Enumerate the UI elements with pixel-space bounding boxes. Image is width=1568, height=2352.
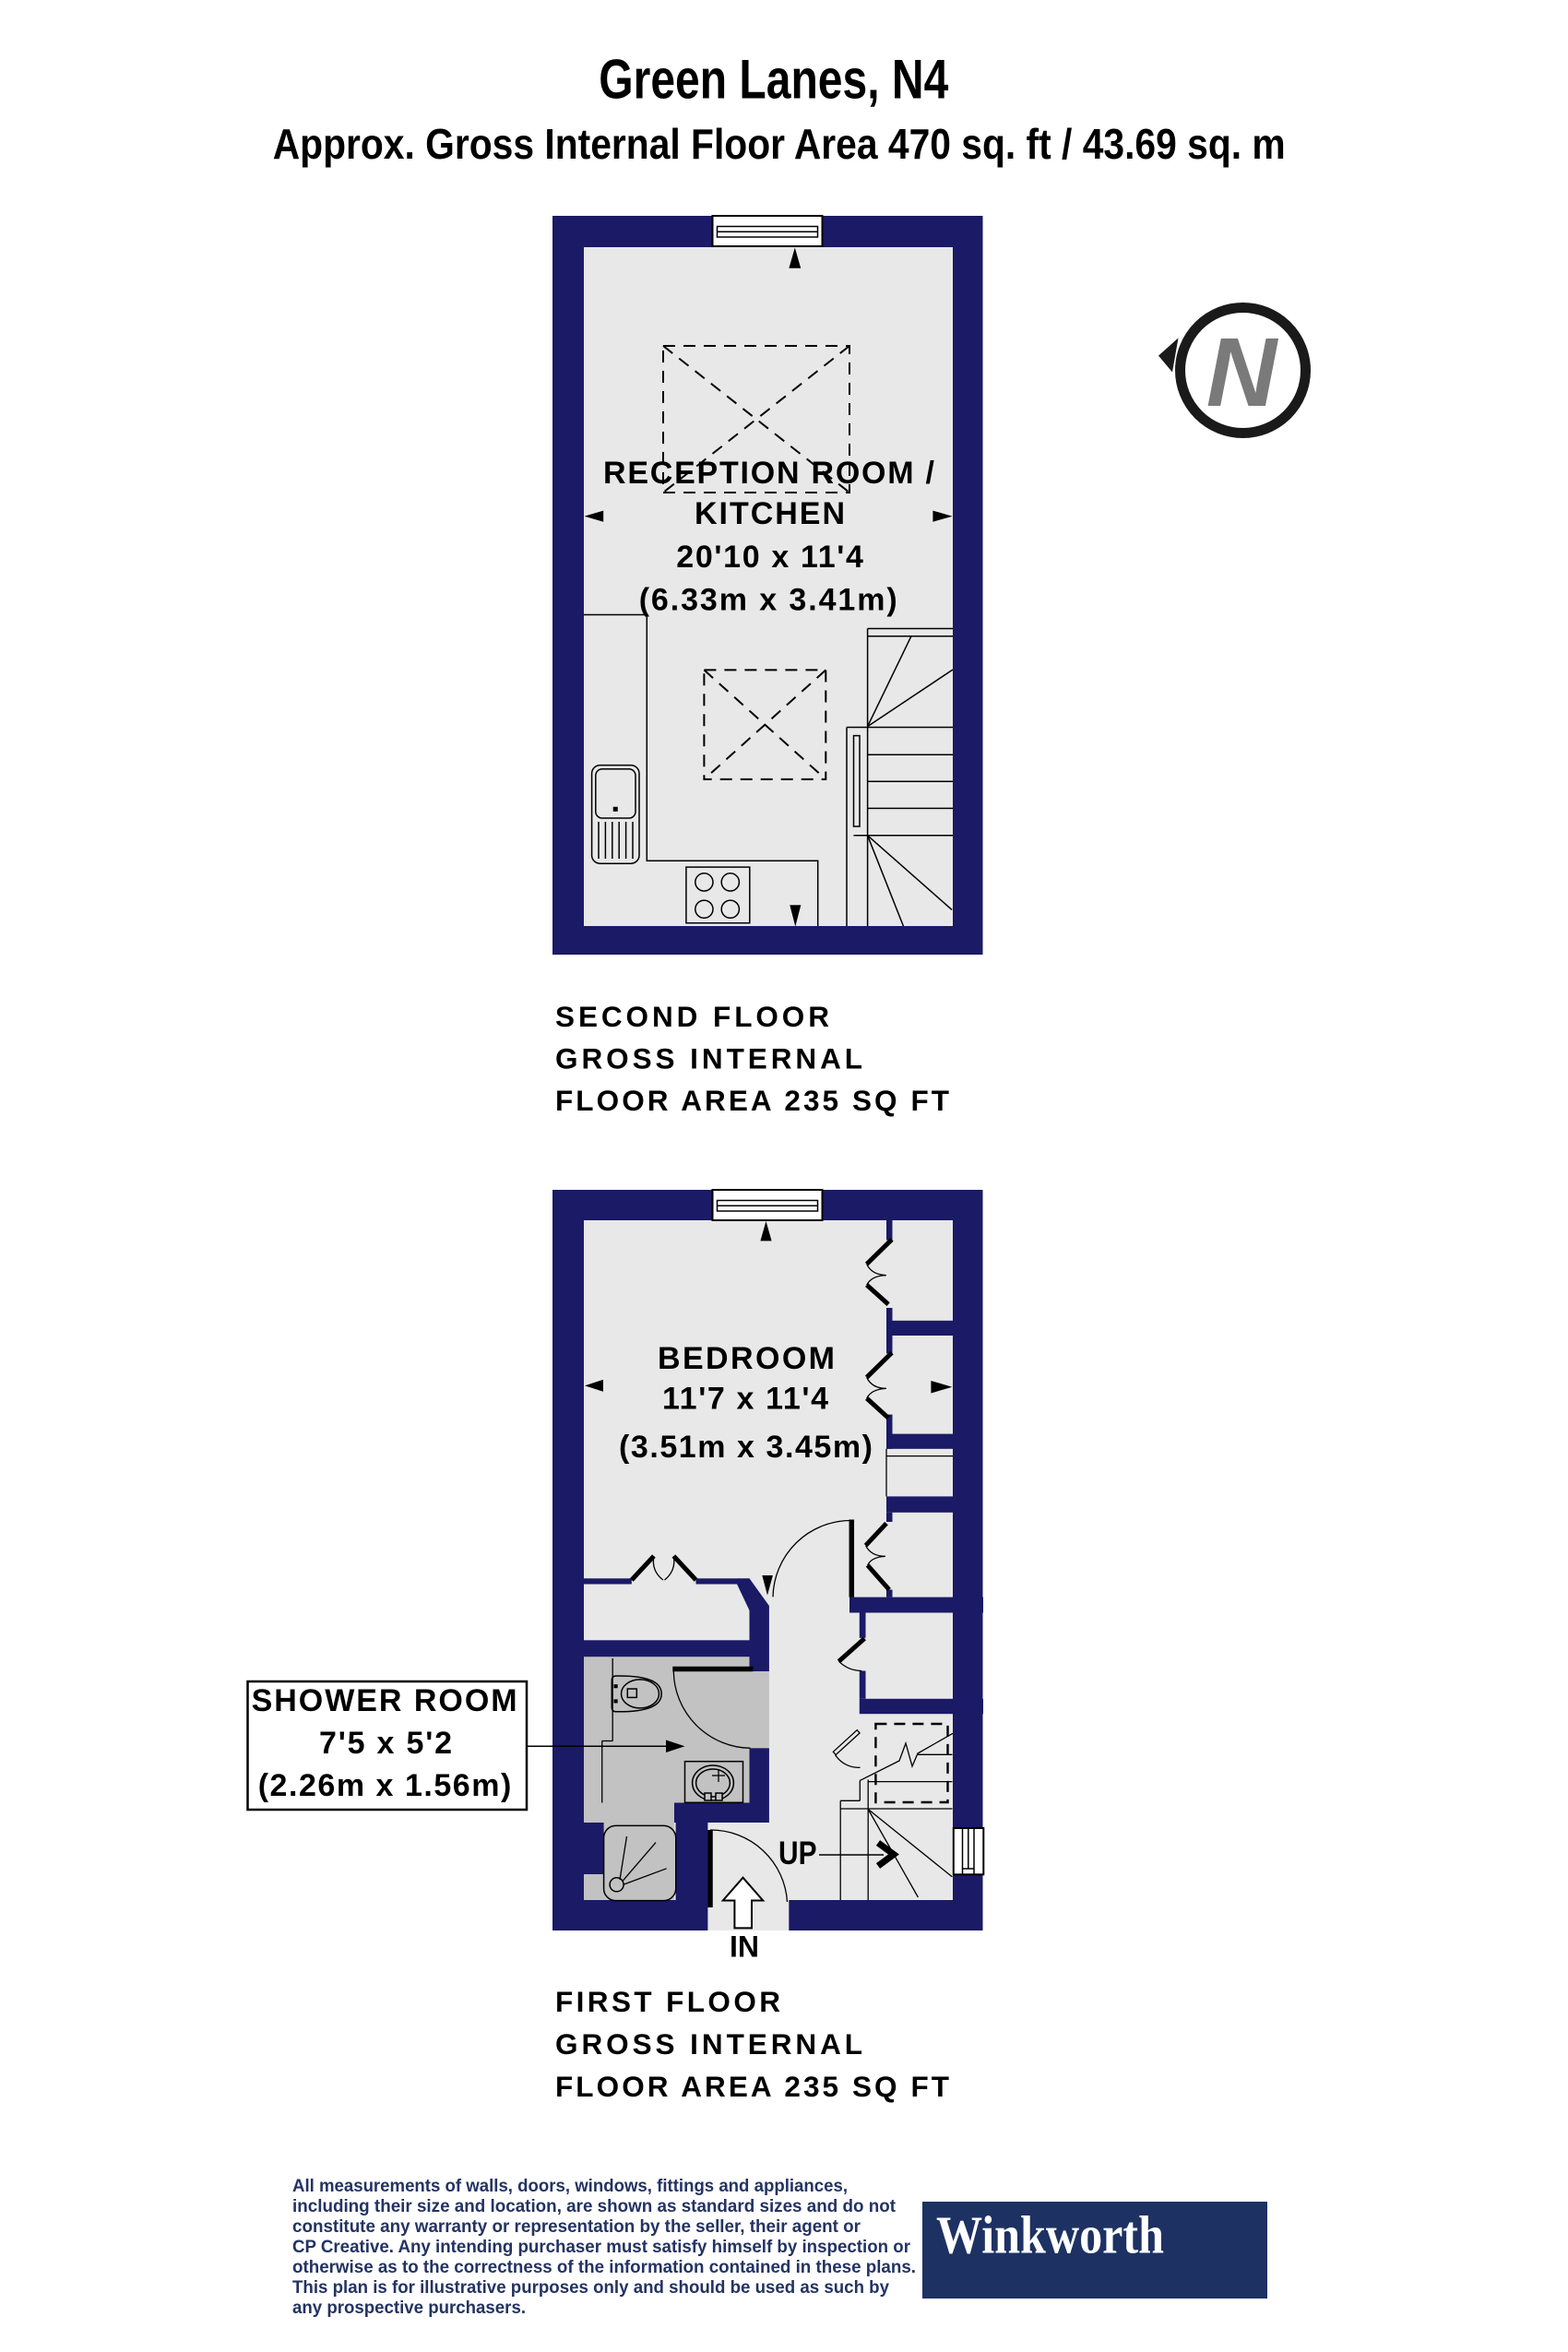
svg-text:otherwise as to the correctnes: otherwise as to the correctness of the i… (292, 2257, 916, 2277)
svg-text:KITCHEN: KITCHEN (695, 496, 845, 531)
svg-text:constitute any warranty or rep: constitute any warranty or representatio… (292, 2216, 861, 2237)
svg-text:SHOWER ROOM: SHOWER ROOM (252, 1683, 517, 1718)
svg-text:(3.51m x 3.45m): (3.51m x 3.45m) (619, 1430, 873, 1465)
svg-text:7'5 x 5'2: 7'5 x 5'2 (319, 1726, 452, 1761)
svg-text:FLOOR AREA 235 SQ FT: FLOOR AREA 235 SQ FT (555, 2070, 949, 2103)
svg-text:20'10 x 11'4: 20'10 x 11'4 (676, 540, 863, 575)
svg-text:Green Lanes, N4: Green Lanes, N4 (599, 49, 949, 111)
svg-text:GROSS INTERNAL: GROSS INTERNAL (555, 2027, 862, 2061)
svg-text:RECEPTION ROOM /: RECEPTION ROOM / (603, 456, 935, 491)
svg-text:(2.26m x 1.56m): (2.26m x 1.56m) (258, 1768, 512, 1803)
svg-text:GROSS INTERNAL: GROSS INTERNAL (555, 1042, 862, 1075)
svg-text:Approx. Gross Internal Floor A: Approx. Gross Internal Floor Area 470 sq… (273, 120, 1286, 168)
svg-text:CP Creative. Any intending pur: CP Creative. Any intending purchaser mus… (292, 2237, 910, 2257)
svg-text:SECOND FLOOR: SECOND FLOOR (555, 1000, 829, 1033)
svg-text:All measurements of walls, doo: All measurements of walls, doors, window… (292, 2176, 848, 2196)
svg-text:(6.33m x 3.41m): (6.33m x 3.41m) (639, 583, 897, 618)
svg-text:FIRST FLOOR: FIRST FLOOR (555, 1985, 780, 2018)
svg-text:IN: IN (730, 1930, 759, 1964)
svg-text:any prospective purchasers.: any prospective purchasers. (292, 2298, 526, 2318)
svg-text:including their size and locat: including their size and location, are s… (292, 2196, 896, 2216)
svg-text:11'7 x 11'4: 11'7 x 11'4 (662, 1382, 828, 1417)
svg-text:BEDROOM: BEDROOM (658, 1341, 835, 1376)
svg-text:FLOOR AREA 235 SQ FT: FLOOR AREA 235 SQ FT (555, 1084, 949, 1117)
svg-text:UP: UP (778, 1835, 817, 1871)
svg-text:This plan is for illustrative: This plan is for illustrative purposes o… (292, 2277, 889, 2298)
svg-text:N: N (1206, 318, 1279, 427)
svg-text:Winkworth: Winkworth (936, 2205, 1164, 2265)
